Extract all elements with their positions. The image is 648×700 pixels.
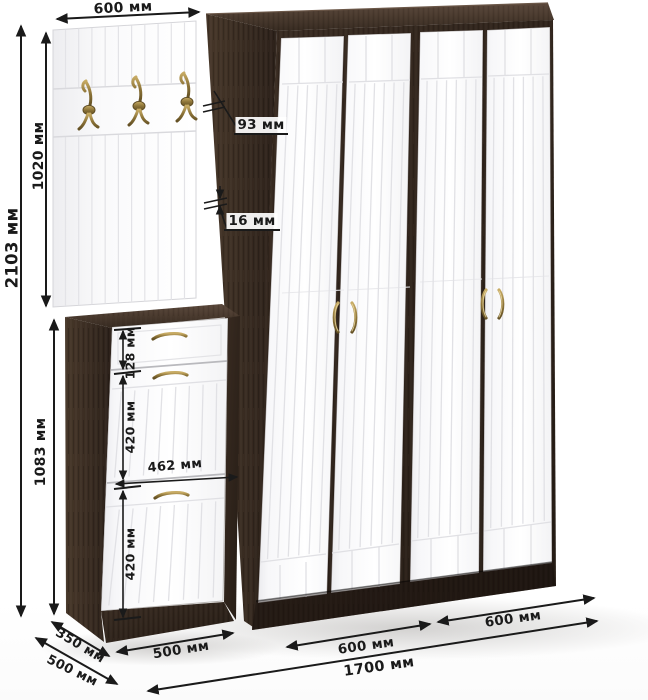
dim-label-panel-width: 600 мм xyxy=(93,0,153,18)
furniture-dimension-diagram: 600 мм 2103 мм 1020 мм 1083 мм 93 мм 16 … xyxy=(0,0,648,700)
dim-label-flap2-height: 420 мм xyxy=(123,528,138,581)
dim-label-cabinet-height: 1083 мм xyxy=(33,418,49,487)
dim-label-flap1-height: 420 мм xyxy=(123,401,138,454)
dim-label-panel-height: 1020 мм xyxy=(31,122,47,191)
wall-hook-panel xyxy=(53,21,196,307)
hook-panel-board xyxy=(53,21,196,307)
dim-label-panel-thickness: 16 мм xyxy=(226,213,277,229)
furniture-scene xyxy=(0,0,648,700)
wardrobe xyxy=(206,3,556,630)
dim-label-drawer-height: 128 мм xyxy=(123,327,138,380)
dim-label-side-depth: 93 мм xyxy=(235,117,286,133)
dim-label-total-height: 2103 мм xyxy=(3,208,22,289)
